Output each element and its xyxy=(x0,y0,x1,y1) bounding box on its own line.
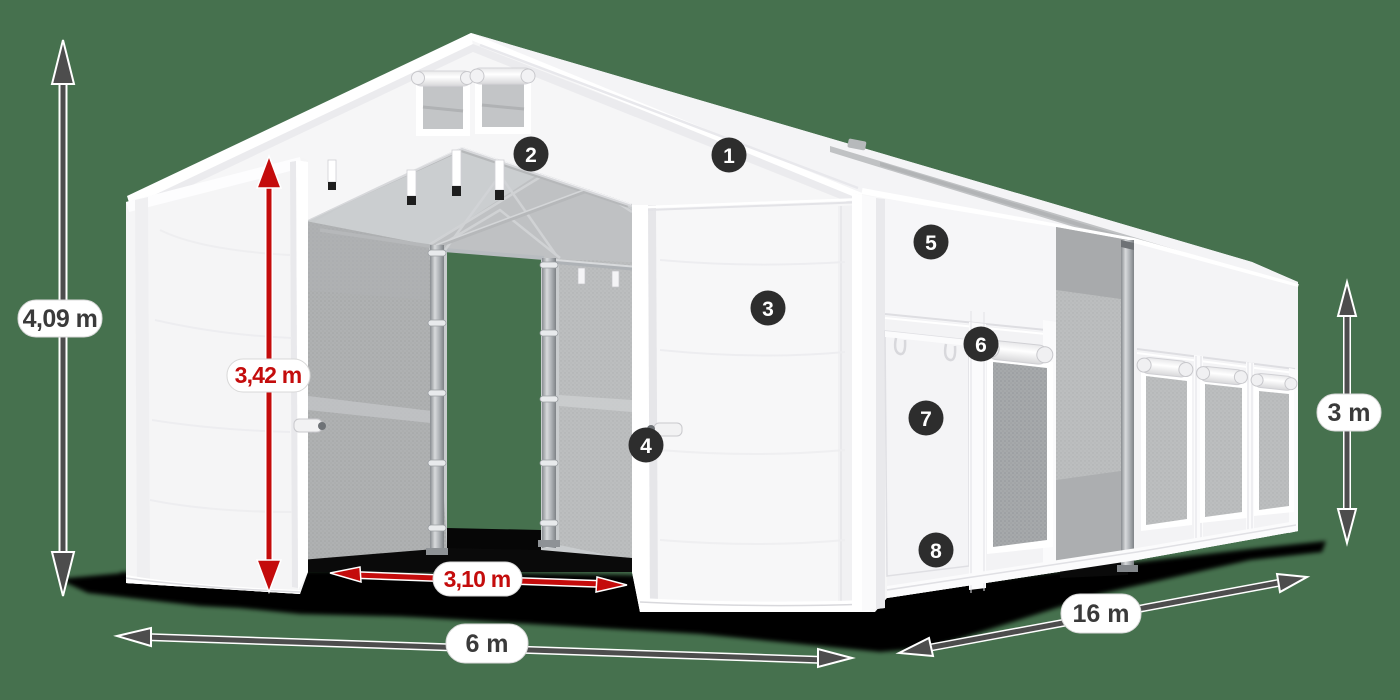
svg-text:3: 3 xyxy=(762,298,774,321)
svg-text:3,42 m: 3,42 m xyxy=(235,362,302,388)
svg-text:16 m: 16 m xyxy=(1073,600,1130,628)
svg-text:3,10 m: 3,10 m xyxy=(444,566,511,592)
svg-text:1: 1 xyxy=(723,145,735,168)
svg-text:2: 2 xyxy=(525,144,537,167)
svg-text:5: 5 xyxy=(925,232,937,255)
svg-text:6 m: 6 m xyxy=(465,630,508,658)
svg-text:4: 4 xyxy=(640,435,652,458)
svg-text:6: 6 xyxy=(975,334,987,357)
svg-text:7: 7 xyxy=(920,408,932,431)
svg-text:4,09 m: 4,09 m xyxy=(23,305,98,333)
svg-text:8: 8 xyxy=(930,540,942,563)
svg-text:3 m: 3 m xyxy=(1327,399,1370,427)
